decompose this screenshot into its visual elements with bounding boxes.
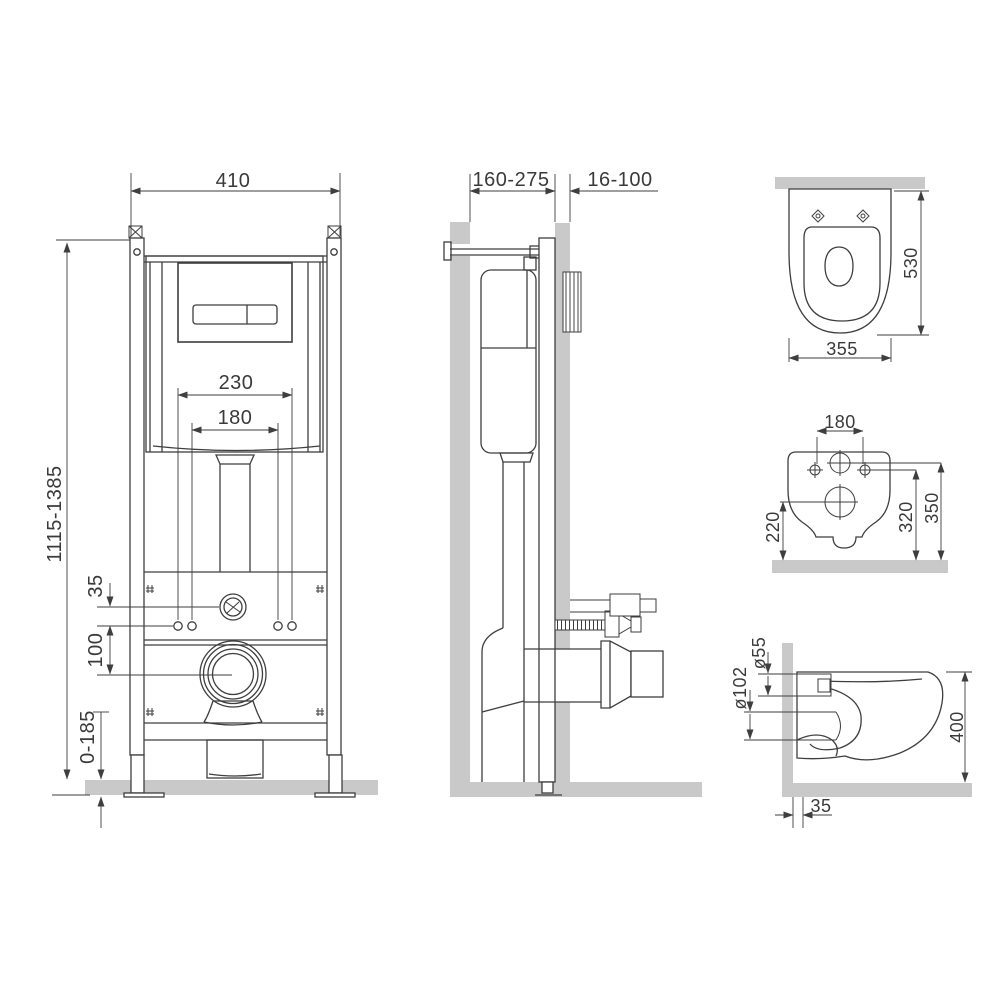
water-inlet-valve (220, 594, 246, 620)
dim-front-valve-offset: 35 (86, 574, 106, 597)
frame-side-view (444, 174, 702, 797)
dim-rear-hole-spacing: 180 (824, 413, 856, 431)
seat-outline (804, 227, 880, 321)
stud-holes (174, 622, 296, 630)
dim-front-height-range: 1115-1385 (45, 465, 65, 562)
flush-pipe-front (220, 464, 250, 572)
dim-front-drain-offset: 100 (86, 633, 106, 668)
dim-front-lower-spacing: 180 (218, 408, 253, 428)
dim-rear-hole-height: 320 (897, 501, 915, 533)
dim-side-depth-range: 160-275 (473, 170, 550, 190)
drain-opening (200, 641, 266, 707)
dim-front-foot-range: 0-185 (78, 710, 98, 764)
rear-inlet-hole (827, 450, 853, 476)
adjuster-marks (146, 585, 324, 716)
rear-wall (450, 222, 470, 782)
dim-front-upper-spacing: 230 (219, 373, 254, 393)
seat-mount-holes (812, 210, 869, 222)
frame-rail-side (539, 238, 555, 782)
floor-rear (772, 560, 948, 573)
dim-top-bowl-width: 355 (826, 340, 858, 358)
bowl-inner (825, 247, 853, 286)
upper-fitting (570, 594, 656, 616)
flush-plate (178, 263, 292, 342)
flush-access-sleeve (563, 272, 581, 332)
bowl-outline-rear (788, 452, 890, 548)
cistern-side (481, 257, 536, 462)
installation-drawing: 410 1115-1385 230 180 35 100 0-185 160-2… (0, 0, 1000, 1000)
rear-dimensions (780, 431, 941, 560)
wall-strip-side (782, 643, 793, 783)
dim-front-width: 410 (216, 171, 251, 191)
wall-strip-top (775, 177, 925, 189)
dim-bowlside-wall-offset: 35 (810, 797, 831, 815)
floor-strip-side (782, 783, 972, 797)
cistern-front (146, 256, 323, 464)
dim-bowlside-height: 400 (948, 711, 966, 743)
dim-rear-inlet-height: 350 (923, 492, 941, 524)
rear-drain-hole (822, 484, 858, 520)
dim-side-finish-thickness: 16-100 (587, 170, 652, 190)
dim-top-bowl-length: 530 (902, 247, 920, 279)
bottom-outlet (207, 740, 263, 778)
anchor-brackets (129, 226, 341, 238)
inlet-spigot (797, 674, 831, 696)
dim-bowlside-outlet-dia: ø102 (731, 666, 749, 709)
dim-rear-drain-height: 220 (764, 511, 782, 543)
dim-bowlside-inlet-dia: ø55 (750, 637, 768, 670)
bowl-side-view (744, 643, 972, 828)
drain-outlet (601, 641, 663, 708)
drawing-canvas (0, 0, 1000, 1000)
frame-front-view (52, 173, 378, 828)
drain-bell (204, 701, 262, 725)
top-crossbar (144, 256, 327, 262)
floor-side (450, 782, 702, 797)
